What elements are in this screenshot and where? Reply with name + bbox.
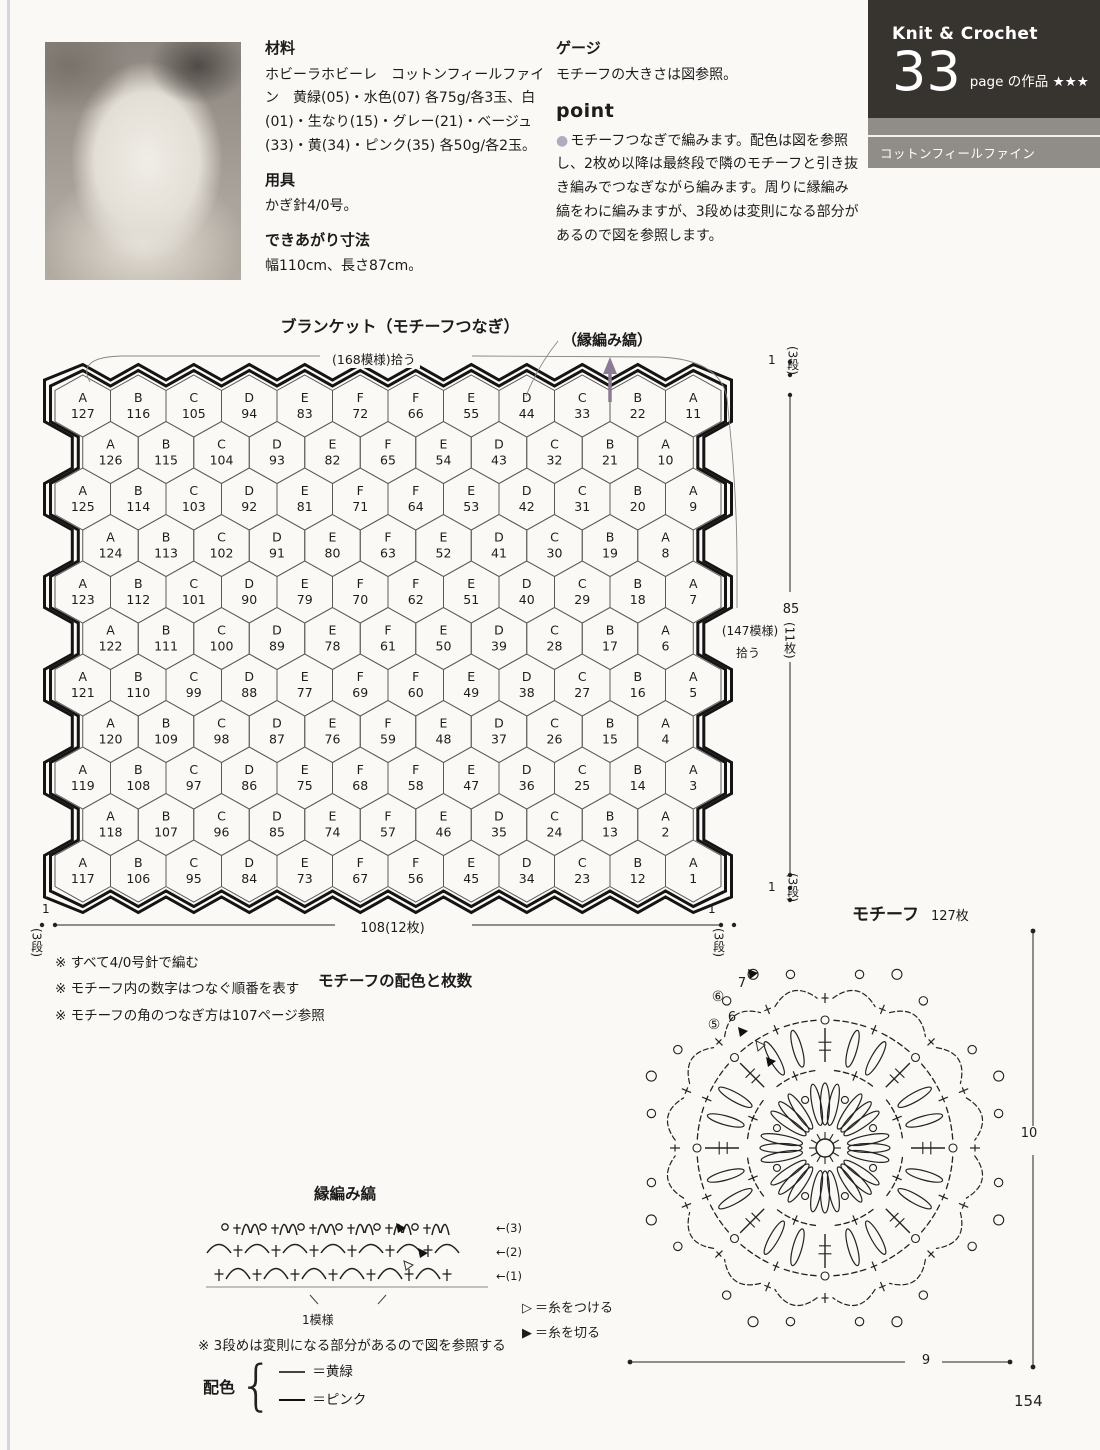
svg-text:C: C — [550, 530, 559, 545]
svg-text:E: E — [467, 855, 475, 870]
svg-text:84: 84 — [241, 871, 257, 886]
svg-text:121: 121 — [71, 685, 95, 700]
svg-text:D: D — [244, 762, 254, 777]
svg-text:B: B — [606, 623, 615, 638]
svg-text:93: 93 — [269, 453, 285, 468]
svg-text:57: 57 — [380, 825, 396, 840]
svg-text:E: E — [329, 530, 337, 545]
svg-text:C: C — [578, 390, 587, 405]
green-line-icon — [279, 1371, 305, 1373]
svg-text:119: 119 — [71, 778, 95, 793]
svg-text:D: D — [272, 809, 282, 824]
svg-text:F: F — [357, 855, 364, 870]
svg-text:32: 32 — [547, 453, 563, 468]
svg-text:C: C — [550, 437, 559, 452]
svg-text:E: E — [329, 809, 337, 824]
svg-text:F: F — [384, 809, 391, 824]
edge-mark-num-rb: 1 — [768, 880, 776, 894]
svg-text:E: E — [440, 530, 448, 545]
svg-text:E: E — [467, 669, 475, 684]
point-body: ●モチーフつなぎで編みます。配色は図を参照し、2枚め以降は最終段で隣のモチーフと… — [556, 130, 862, 249]
pattern-notes: ※ すべて4/0号針で編む ※ モチーフ内の数字はつなぐ順番を表す ※ モチーフ… — [55, 950, 325, 1029]
svg-text:108: 108 — [126, 778, 150, 793]
gauge-body: モチーフの大きさは図参照。 — [556, 64, 862, 88]
svg-text:1: 1 — [689, 871, 697, 886]
svg-text:D: D — [244, 390, 254, 405]
svg-text:76: 76 — [325, 732, 341, 747]
svg-text:F: F — [357, 669, 364, 684]
svg-text:82: 82 — [325, 453, 341, 468]
svg-text:112: 112 — [126, 592, 150, 607]
svg-text:A: A — [689, 762, 698, 777]
svg-text:D: D — [494, 623, 504, 638]
svg-text:D: D — [494, 530, 504, 545]
blanket-height-dim: 85 — [776, 602, 806, 617]
svg-text:28: 28 — [547, 639, 563, 654]
svg-text:88: 88 — [241, 685, 257, 700]
svg-text:D: D — [522, 762, 532, 777]
svg-text:77: 77 — [297, 685, 313, 700]
svg-text:A: A — [689, 576, 698, 591]
note-1: ※ すべて4/0号針で編む — [55, 950, 325, 976]
svg-text:73: 73 — [297, 871, 313, 886]
materials-body: ホビーラホビーレ コットンフィールファイン 黄緑(05)・水色(07) 各75g… — [265, 64, 557, 159]
svg-text:E: E — [301, 483, 309, 498]
svg-text:⑤: ⑤ — [708, 1017, 721, 1033]
svg-text:C: C — [550, 716, 559, 731]
svg-text:25: 25 — [574, 778, 590, 793]
svg-text:46: 46 — [436, 825, 452, 840]
svg-text:B: B — [162, 716, 171, 731]
svg-text:15: 15 — [602, 732, 618, 747]
svg-text:80: 80 — [325, 546, 341, 561]
svg-text:E: E — [467, 483, 475, 498]
svg-text:B: B — [134, 483, 143, 498]
point-bullet-icon: ● — [556, 133, 568, 149]
yarn-band-line — [868, 135, 1100, 137]
svg-text:F: F — [357, 390, 364, 405]
svg-text:D: D — [522, 390, 532, 405]
svg-text:51: 51 — [463, 592, 479, 607]
svg-text:B: B — [606, 809, 615, 824]
svg-text:22: 22 — [630, 406, 646, 421]
svg-text:98: 98 — [214, 732, 230, 747]
svg-text:120: 120 — [99, 732, 123, 747]
svg-text:A: A — [78, 855, 87, 870]
edge-mark-rows-tr: (3段) — [786, 346, 799, 375]
svg-text:F: F — [384, 530, 391, 545]
svg-text:97: 97 — [186, 778, 202, 793]
motif-legend: ▷＝糸をつける ▶＝糸を切る — [522, 1297, 613, 1346]
svg-text:B: B — [633, 669, 642, 684]
edging-colors: 配色 { ＝黄緑 ＝ピンク — [203, 1358, 366, 1415]
svg-text:D: D — [522, 576, 532, 591]
svg-text:A: A — [661, 716, 670, 731]
svg-text:71: 71 — [352, 499, 368, 514]
svg-text:43: 43 — [491, 453, 507, 468]
svg-text:6: 6 — [728, 1010, 736, 1025]
svg-text:D: D — [272, 716, 282, 731]
svg-text:94: 94 — [241, 406, 257, 421]
open-triangle-icon: ▷ — [522, 1301, 532, 1316]
svg-text:8: 8 — [662, 546, 670, 561]
yarn-band-label: コットンフィールファイン — [880, 143, 1035, 162]
svg-text:30: 30 — [547, 546, 563, 561]
svg-text:A: A — [78, 669, 87, 684]
edging-pattern-label: 1模様 — [302, 1311, 334, 1328]
svg-text:115: 115 — [154, 453, 178, 468]
svg-text:44: 44 — [519, 406, 535, 421]
motif-crochet-chart: ⑥76⑤ — [600, 915, 1060, 1380]
svg-text:99: 99 — [186, 685, 202, 700]
svg-text:23: 23 — [574, 871, 590, 886]
svg-text:B: B — [162, 437, 171, 452]
svg-text:89: 89 — [269, 639, 285, 654]
svg-text:E: E — [301, 669, 309, 684]
note-3: ※ モチーフの角のつなぎ方は107ページ参照 — [55, 1003, 325, 1029]
svg-text:12: 12 — [630, 871, 646, 886]
color-key-pink: ＝ピンク — [279, 1386, 366, 1414]
svg-text:E: E — [329, 716, 337, 731]
cut-yarn-marker — [738, 1027, 748, 1037]
svg-text:110: 110 — [126, 685, 150, 700]
scan-edge-artifact — [7, 0, 10, 1450]
svg-text:B: B — [134, 669, 143, 684]
svg-text:31: 31 — [574, 499, 590, 514]
size-heading: できあがり寸法 — [265, 228, 557, 254]
edging-arrow — [603, 357, 617, 374]
svg-text:5: 5 — [689, 685, 697, 700]
svg-text:A: A — [106, 437, 115, 452]
svg-text:E: E — [329, 623, 337, 638]
svg-text:F: F — [384, 623, 391, 638]
svg-text:F: F — [412, 762, 419, 777]
svg-text:B: B — [162, 623, 171, 638]
svg-text:85: 85 — [269, 825, 285, 840]
svg-text:78: 78 — [325, 639, 341, 654]
color-table-title: モチーフの配色と枚数 — [318, 969, 472, 991]
svg-text:21: 21 — [602, 453, 618, 468]
attach-yarn-marker — [404, 1261, 413, 1270]
svg-text:65: 65 — [380, 453, 396, 468]
svg-text:B: B — [134, 390, 143, 405]
svg-text:A: A — [78, 390, 87, 405]
svg-text:D: D — [272, 623, 282, 638]
svg-text:66: 66 — [408, 406, 424, 421]
svg-text:13: 13 — [602, 825, 618, 840]
svg-text:26: 26 — [547, 732, 563, 747]
svg-text:A: A — [661, 437, 670, 452]
svg-text:F: F — [412, 669, 419, 684]
legend-attach-yarn: ▷＝糸をつける — [522, 1297, 613, 1322]
svg-text:D: D — [244, 576, 254, 591]
svg-text:D: D — [494, 809, 504, 824]
svg-text:C: C — [189, 576, 198, 591]
tools-heading: 用具 — [265, 168, 557, 194]
svg-text:C: C — [550, 809, 559, 824]
svg-text:34: 34 — [519, 871, 535, 886]
svg-text:64: 64 — [408, 499, 424, 514]
svg-text:F: F — [384, 437, 391, 452]
svg-text:B: B — [134, 576, 143, 591]
svg-text:D: D — [522, 483, 532, 498]
svg-text:←(1): ←(1) — [496, 1269, 522, 1283]
svg-text:D: D — [494, 716, 504, 731]
svg-text:B: B — [633, 576, 642, 591]
svg-text:E: E — [329, 437, 337, 452]
svg-text:A: A — [661, 530, 670, 545]
svg-text:105: 105 — [182, 406, 206, 421]
motif-width-dim: 9 — [912, 1353, 940, 1368]
svg-text:11: 11 — [685, 406, 701, 421]
svg-text:95: 95 — [186, 871, 202, 886]
svg-text:E: E — [440, 623, 448, 638]
svg-text:61: 61 — [380, 639, 396, 654]
svg-text:42: 42 — [519, 499, 535, 514]
svg-text:E: E — [467, 762, 475, 777]
pickup-right-label-2: 拾う — [736, 644, 760, 661]
svg-text:B: B — [633, 483, 642, 498]
yarn-band: コットンフィールファイン — [868, 118, 1100, 168]
blanket-assembly-diagram: A127B116C105D94E83F72F66E55D44C33B22A11A… — [20, 340, 820, 960]
svg-text:68: 68 — [352, 778, 368, 793]
svg-text:16: 16 — [630, 685, 646, 700]
svg-text:100: 100 — [210, 639, 234, 654]
svg-text:102: 102 — [210, 546, 234, 561]
svg-text:E: E — [301, 390, 309, 405]
svg-text:C: C — [217, 530, 226, 545]
svg-text:A: A — [78, 576, 87, 591]
svg-text:37: 37 — [491, 732, 507, 747]
page-header-box: Knit & Crochet 33 page の作品 ★★★ — [868, 0, 1100, 118]
svg-text:E: E — [440, 809, 448, 824]
svg-text:A: A — [106, 809, 115, 824]
svg-text:24: 24 — [547, 825, 563, 840]
svg-text:35: 35 — [491, 825, 507, 840]
svg-text:C: C — [578, 669, 587, 684]
svg-text:A: A — [106, 530, 115, 545]
svg-text:D: D — [522, 855, 532, 870]
svg-text:19: 19 — [602, 546, 618, 561]
svg-text:118: 118 — [99, 825, 123, 840]
svg-text:45: 45 — [463, 871, 479, 886]
svg-text:D: D — [494, 437, 504, 452]
svg-text:55: 55 — [463, 406, 479, 421]
attach-yarn-marker — [756, 1041, 765, 1051]
svg-text:75: 75 — [297, 778, 313, 793]
svg-text:127: 127 — [71, 406, 95, 421]
svg-text:A: A — [689, 483, 698, 498]
svg-text:C: C — [217, 809, 226, 824]
svg-text:F: F — [357, 576, 364, 591]
svg-text:69: 69 — [352, 685, 368, 700]
svg-text:E: E — [440, 716, 448, 731]
note-2: ※ モチーフ内の数字はつなぐ順番を表す — [55, 976, 325, 1002]
svg-text:E: E — [301, 576, 309, 591]
materials-heading: 材料 — [265, 36, 557, 62]
svg-text:18: 18 — [630, 592, 646, 607]
svg-text:92: 92 — [241, 499, 257, 514]
svg-text:F: F — [412, 483, 419, 498]
svg-text:124: 124 — [99, 546, 123, 561]
svg-text:90: 90 — [241, 592, 257, 607]
svg-text:B: B — [162, 530, 171, 545]
svg-text:C: C — [578, 576, 587, 591]
svg-text:←(2): ←(2) — [496, 1245, 522, 1259]
motif-height-dim: 10 — [1014, 1126, 1044, 1141]
svg-text:E: E — [467, 576, 475, 591]
svg-text:C: C — [189, 669, 198, 684]
svg-text:B: B — [606, 530, 615, 545]
svg-text:79: 79 — [297, 592, 313, 607]
svg-text:F: F — [384, 716, 391, 731]
svg-text:C: C — [578, 762, 587, 777]
svg-text:D: D — [244, 669, 254, 684]
svg-text:72: 72 — [352, 406, 368, 421]
svg-text:A: A — [689, 855, 698, 870]
header-sub-label: page の作品 ★★★ — [970, 70, 1089, 97]
svg-text:B: B — [606, 437, 615, 452]
svg-text:106: 106 — [126, 871, 150, 886]
svg-text:52: 52 — [436, 546, 452, 561]
svg-text:123: 123 — [71, 592, 95, 607]
edging-chart: ←(3)←(2)←(1) — [192, 1203, 532, 1313]
svg-text:38: 38 — [519, 685, 535, 700]
svg-text:B: B — [633, 762, 642, 777]
svg-text:91: 91 — [269, 546, 285, 561]
edging-callout-label: （縁編み縞） — [562, 329, 652, 350]
svg-text:117: 117 — [71, 871, 95, 886]
svg-text:50: 50 — [436, 639, 452, 654]
svg-text:F: F — [412, 855, 419, 870]
pickup-top-label: (168模様)拾う — [328, 349, 420, 368]
edge-mark-num-br: 1 — [708, 902, 716, 916]
edge-mark-rows-rb: (3段) — [786, 873, 799, 902]
pickup-right-label-1: (147模様) — [714, 622, 786, 639]
svg-text:63: 63 — [380, 546, 396, 561]
svg-text:27: 27 — [574, 685, 590, 700]
edge-mark-num-tr: 1 — [768, 353, 776, 367]
svg-text:A: A — [106, 716, 115, 731]
svg-text:E: E — [467, 390, 475, 405]
edging-note: ※ 3段めは変則になる部分があるので図を参照する — [198, 1334, 506, 1354]
svg-text:A: A — [689, 390, 698, 405]
blanket-photo — [45, 42, 241, 280]
cut-yarn-marker — [766, 1057, 776, 1067]
svg-text:41: 41 — [491, 546, 507, 561]
svg-text:2: 2 — [662, 825, 670, 840]
svg-text:C: C — [578, 855, 587, 870]
materials-column: 材料 ホビーラホビーレ コットンフィールファイン 黄緑(05)・水色(07) 各… — [265, 36, 557, 279]
svg-text:9: 9 — [689, 499, 697, 514]
svg-text:E: E — [301, 762, 309, 777]
svg-text:7: 7 — [689, 592, 697, 607]
svg-text:86: 86 — [241, 778, 257, 793]
svg-text:D: D — [244, 483, 254, 498]
edging-title: 縁編み縞 — [270, 1182, 420, 1204]
svg-text:101: 101 — [182, 592, 206, 607]
point-heading: point — [556, 95, 862, 127]
blanket-diagram-title: ブランケット（モチーフつなぎ） — [240, 313, 560, 337]
svg-text:62: 62 — [408, 592, 424, 607]
svg-text:87: 87 — [269, 732, 285, 747]
svg-text:67: 67 — [352, 871, 368, 886]
svg-text:A: A — [78, 762, 87, 777]
svg-text:14: 14 — [630, 778, 646, 793]
color-key-green: ＝黄緑 — [279, 1358, 366, 1386]
svg-text:109: 109 — [154, 732, 178, 747]
brace-glyph: { — [239, 1362, 273, 1411]
svg-text:74: 74 — [325, 825, 341, 840]
edge-mark-num-bl: 1 — [42, 902, 50, 916]
svg-text:F: F — [412, 390, 419, 405]
svg-text:C: C — [189, 855, 198, 870]
svg-text:B: B — [633, 390, 642, 405]
svg-text:104: 104 — [210, 453, 234, 468]
svg-text:116: 116 — [126, 406, 150, 421]
svg-text:C: C — [217, 437, 226, 452]
gauge-column: ゲージ モチーフの大きさは図参照。 point ●モチーフつなぎで編みます。配色… — [556, 36, 862, 249]
svg-text:114: 114 — [126, 499, 150, 514]
svg-text:36: 36 — [519, 778, 535, 793]
svg-text:D: D — [272, 437, 282, 452]
svg-text:103: 103 — [182, 499, 206, 514]
svg-text:A: A — [689, 669, 698, 684]
svg-text:111: 111 — [154, 639, 178, 654]
svg-text:⑥: ⑥ — [712, 989, 725, 1005]
svg-text:6: 6 — [662, 639, 670, 654]
svg-text:53: 53 — [463, 499, 479, 514]
book-page: 材料 ホビーラホビーレ コットンフィールファイン 黄緑(05)・水色(07) 各… — [0, 0, 1100, 1450]
svg-text:59: 59 — [380, 732, 396, 747]
edge-mark-rows-bl: (3段) — [30, 928, 43, 957]
gauge-heading: ゲージ — [556, 36, 862, 62]
svg-text:C: C — [189, 483, 198, 498]
svg-text:E: E — [440, 437, 448, 452]
svg-text:C: C — [189, 762, 198, 777]
svg-text:107: 107 — [154, 825, 178, 840]
svg-text:7: 7 — [738, 976, 746, 991]
svg-text:D: D — [244, 855, 254, 870]
svg-text:F: F — [357, 483, 364, 498]
svg-text:10: 10 — [658, 453, 674, 468]
svg-text:54: 54 — [436, 453, 452, 468]
svg-text:B: B — [606, 716, 615, 731]
svg-text:F: F — [357, 762, 364, 777]
blanket-height-sub: (11枚) — [783, 622, 796, 659]
svg-text:←(3): ←(3) — [496, 1221, 522, 1235]
tools-body: かぎ針4/0号。 — [265, 195, 557, 219]
pink-line-icon — [279, 1399, 305, 1401]
svg-text:B: B — [134, 855, 143, 870]
svg-text:81: 81 — [297, 499, 313, 514]
svg-text:58: 58 — [408, 778, 424, 793]
svg-text:49: 49 — [463, 685, 479, 700]
svg-text:C: C — [217, 623, 226, 638]
svg-text:A: A — [661, 623, 670, 638]
svg-text:96: 96 — [214, 825, 230, 840]
svg-text:3: 3 — [689, 778, 697, 793]
svg-text:33: 33 — [574, 406, 590, 421]
svg-text:125: 125 — [71, 499, 95, 514]
filled-triangle-icon: ▶ — [522, 1326, 532, 1341]
svg-text:4: 4 — [662, 732, 670, 747]
svg-text:56: 56 — [408, 871, 424, 886]
svg-text:70: 70 — [352, 592, 368, 607]
svg-text:A: A — [661, 809, 670, 824]
svg-text:20: 20 — [630, 499, 646, 514]
svg-text:E: E — [301, 855, 309, 870]
